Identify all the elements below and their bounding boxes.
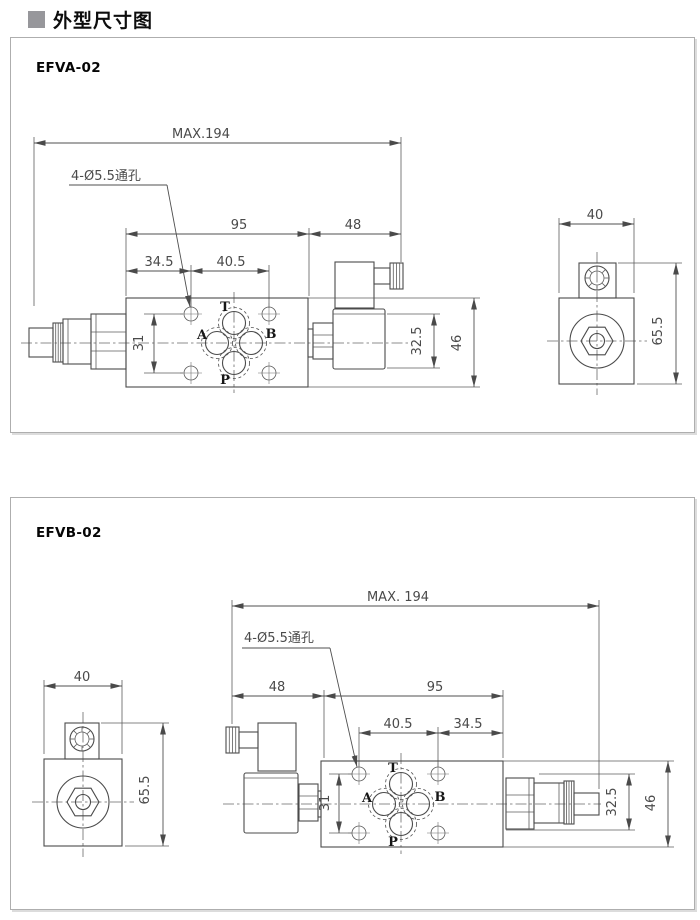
dim-48-text: 48 [345, 218, 362, 233]
model-label: EFVB-02 [36, 525, 102, 541]
dim-65-5-text: 65.5 [651, 317, 666, 346]
panel-efvb-02: EFVB-02 40 65.5 [10, 497, 695, 910]
dim-side-width: 40 [559, 208, 634, 293]
din-connector [335, 262, 374, 308]
dim-48-text: 48 [269, 680, 286, 695]
model-label: EFVA-02 [36, 60, 101, 76]
holes-label: 4-Ø5.5通孔 [244, 631, 314, 646]
solenoid [308, 262, 403, 369]
panel-efva-02: EFVA-02 MAX.194 95 48 34.5 40.5 4-Ø5.5通孔 [10, 37, 695, 433]
port-t-label: T [388, 761, 398, 776]
page-title: 外型尺寸图 [53, 6, 153, 33]
dim-overall-text: MAX. 194 [367, 590, 429, 605]
din-connector [258, 723, 296, 771]
dim-side-height: 65.5 [101, 723, 169, 846]
solenoid [226, 723, 321, 833]
dim-40-5-text: 40.5 [217, 255, 246, 270]
dim-40-text: 40 [74, 670, 91, 685]
dim-hole-rows: 31 [318, 774, 352, 833]
side-view [559, 263, 634, 384]
dim-40-text: 40 [587, 208, 604, 223]
dim-40-5-text: 40.5 [384, 717, 413, 732]
port-b-label: B [266, 327, 277, 342]
adjustment-screw [29, 314, 126, 369]
knurl-ticks [70, 727, 94, 751]
dim-46-text: 46 [644, 795, 659, 812]
dim-46-text: 46 [450, 335, 465, 352]
port-a-label: A [196, 328, 208, 343]
dim-95-text: 95 [231, 218, 248, 233]
dim-overall-text: MAX.194 [172, 127, 230, 142]
holes-label: 4-Ø5.5通孔 [71, 169, 141, 184]
port-p-label: P [388, 835, 398, 850]
dim-plate-height: 46 [308, 298, 480, 387]
dim-65-5-text: 65.5 [138, 776, 153, 805]
port-labels: T A B P [361, 761, 446, 850]
dim-32-5-text: 32.5 [605, 788, 620, 817]
dim-overall-length: MAX. 194 [232, 590, 599, 789]
dim-31-text: 31 [318, 795, 333, 812]
dim-overall-length: MAX.194 [34, 127, 401, 306]
port-b-label: B [435, 790, 446, 805]
port-a-label: A [361, 791, 373, 806]
through-holes-callout: 4-Ø5.5通孔 [242, 631, 357, 767]
dim-hole-columns: 34.5 40.5 [126, 255, 269, 308]
centerlines [21, 252, 647, 395]
dim-hole-rows: 31 [132, 314, 183, 373]
dim-cartridge-height: 32.5 [506, 774, 635, 830]
through-holes-callout: 4-Ø5.5通孔 [69, 169, 190, 307]
efva-drawing: EFVA-02 MAX.194 95 48 34.5 40.5 4-Ø5.5通孔 [11, 38, 694, 432]
port-p-label: P [220, 373, 230, 388]
mounting-plate [126, 298, 308, 387]
port-t-label: T [220, 300, 230, 315]
adjustment-screw [506, 778, 599, 829]
efvb-drawing: EFVB-02 40 65.5 [11, 498, 694, 909]
dim-side-height: 65.5 [618, 263, 682, 384]
page-header: 外型尺寸图 [28, 6, 153, 33]
mounting-holes [180, 303, 280, 384]
title-square-icon [28, 11, 45, 28]
dim-34-5-text: 34.5 [454, 717, 483, 732]
dim-solenoid-height: 32.5 [387, 314, 440, 368]
dim-hole-columns: 40.5 34.5 [359, 717, 503, 767]
dim-31-text: 31 [132, 335, 147, 352]
dim-34-5-text: 34.5 [145, 255, 174, 270]
dim-95-text: 95 [427, 680, 444, 695]
dim-32-5-text: 32.5 [410, 327, 425, 356]
